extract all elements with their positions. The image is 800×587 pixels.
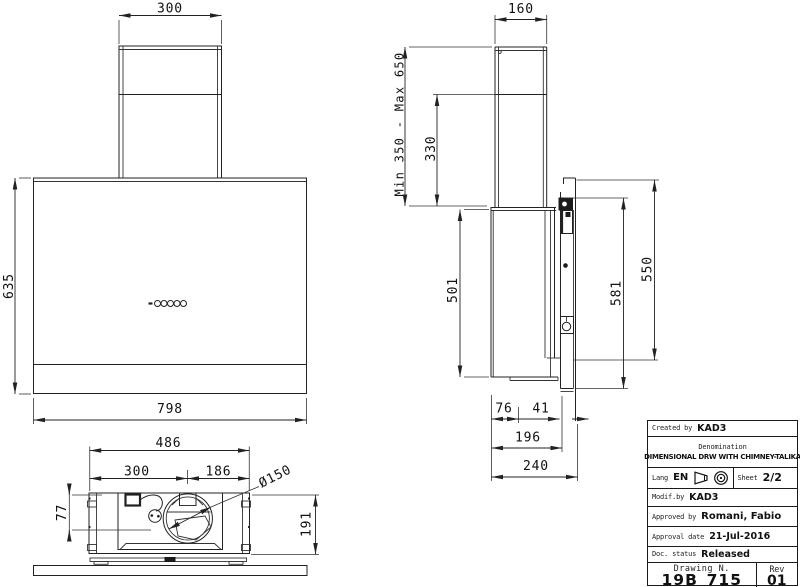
sheet-value: 2/2 (763, 471, 782, 484)
created-by-value: KAD3 (697, 423, 726, 434)
dim-bottom-width: 486 (156, 436, 182, 451)
approval-date-value: 21-Jul-2016 (709, 531, 770, 542)
dim-duct-diameter: Ø150 (257, 462, 295, 491)
doc-status-value: Released (701, 549, 750, 560)
denomination-value: DIMENSIONAL DRW WITH CHIMNEY-TALIKA (644, 453, 800, 461)
title-block-denomination-row: Denomination DIMENSIONAL DRW WITH CHIMNE… (648, 436, 797, 468)
dim-front-chimney-width: 300 (157, 2, 183, 17)
dim-bottom-duct-to-right: 186 (206, 465, 232, 480)
title-block-approved-row: Approved by Romani, Fabio (648, 506, 797, 526)
first-angle-projection-cone-icon (692, 470, 710, 486)
dim-side-lower-chimney: 330 (424, 136, 439, 162)
control-buttons-icon (149, 301, 187, 307)
glass-panel-edge (34, 566, 308, 576)
projection-target-icon (713, 470, 729, 486)
rev-value: 01 (767, 575, 786, 587)
dimensional-drawing-page: 300 635 798 (0, 0, 800, 587)
dim-side-chimney-depth: 160 (508, 2, 534, 17)
upper-mounting-bracket (559, 198, 574, 234)
approved-by-value: Romani, Fabio (701, 511, 781, 522)
sheet-label: Sheet (738, 474, 758, 482)
title-block-modif-row: Modif.by KAD3 (648, 488, 797, 507)
cable-gland (149, 510, 162, 523)
drawing-number-value: 19B_715 (662, 574, 743, 587)
dim-side-depth-front: 76 (495, 402, 512, 417)
dim-side-back-height: 550 (641, 256, 656, 282)
dim-side-depth-gap: 41 (532, 402, 549, 417)
title-block-lang-row: Lang EN Sheet 2/2 (648, 467, 797, 488)
modif-by-label: Modif.by (652, 493, 684, 501)
dim-side-mounting-range: Min 350 - Max 650 (393, 52, 407, 197)
title-block-created-row: Created by KAD3 (648, 421, 797, 436)
dim-bottom-left-to-duct: 300 (124, 465, 150, 480)
title-block-approval-date-row: Approval date 21-Jul-2016 (648, 526, 797, 546)
created-by-label: Created by (652, 424, 692, 432)
dim-front-height: 635 (2, 273, 17, 299)
dim-bottom-depth: 191 (300, 511, 315, 537)
fan-outlet (163, 494, 212, 543)
title-block-drawing-row: Drawing N. 19B_715 Rev 01 (648, 562, 797, 587)
front-view: 300 635 798 (2, 2, 307, 425)
title-block: Created by KAD3 Denomination DIMENSIONAL… (647, 420, 798, 586)
modif-by-value: KAD3 (689, 492, 718, 503)
dim-side-body-front-height: 501 (446, 277, 461, 303)
power-cable (140, 495, 162, 511)
side-view: 160 Min 350 - Max 650 330 501 581 550 76… (393, 2, 660, 481)
title-block-doc-status-row: Doc. status Released (648, 546, 797, 562)
approved-by-label: Approved by (652, 513, 696, 521)
bottom-view: 486 300 186 77 191 Ø150 (34, 436, 320, 576)
wall-hook (564, 178, 576, 184)
dim-side-depth-body: 196 (515, 431, 541, 446)
doc-status-label: Doc. status (652, 550, 696, 558)
denomination-label: Denomination (698, 443, 746, 451)
dim-side-depth-total: 240 (523, 459, 549, 474)
lower-mounting-bracket (561, 317, 574, 334)
terminal-box (126, 495, 141, 506)
dim-front-width: 798 (157, 402, 183, 417)
approval-date-label: Approval date (652, 533, 704, 541)
dim-side-bracket-height: 581 (610, 280, 625, 306)
lang-value: EN (673, 472, 688, 483)
lang-label: Lang (652, 474, 668, 482)
dim-bottom-gland-offset: 77 (55, 504, 70, 521)
